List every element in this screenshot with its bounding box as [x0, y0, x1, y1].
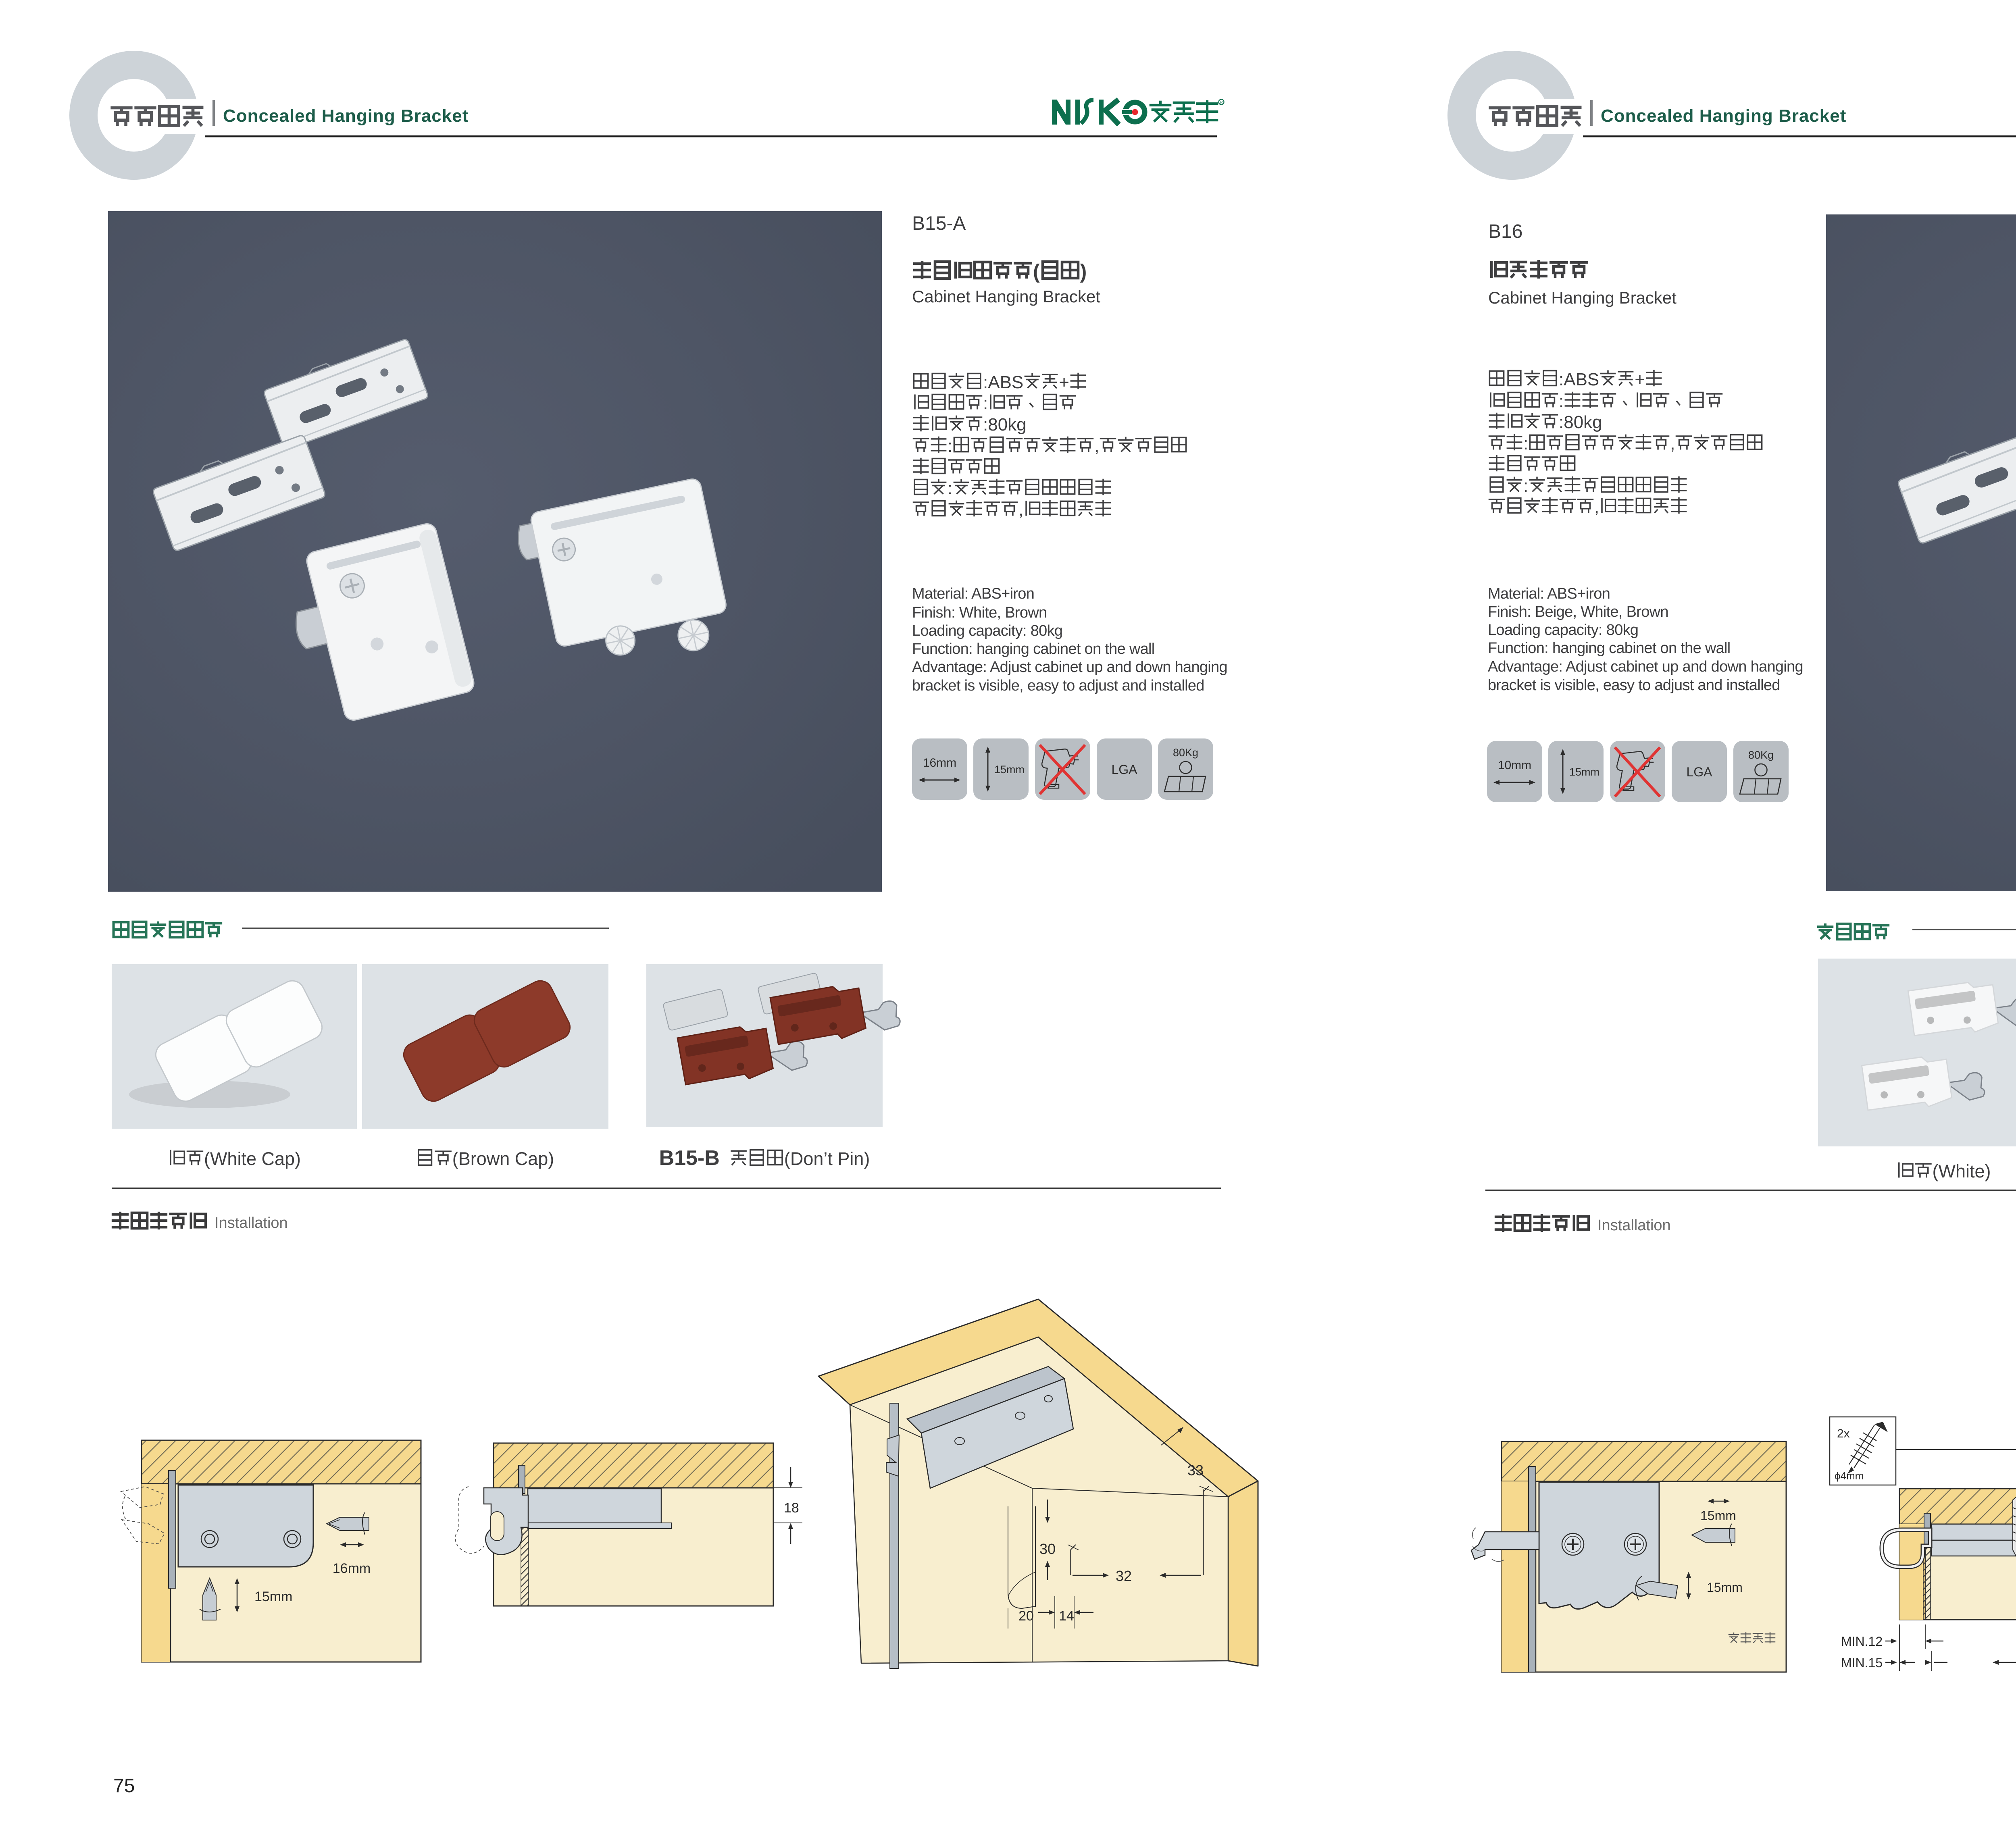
svg-text:16mm: 16mm — [333, 1561, 371, 1576]
svg-text:15mm: 15mm — [254, 1589, 292, 1604]
svg-text:18: 18 — [784, 1500, 799, 1516]
svg-text:30: 30 — [1039, 1541, 1056, 1557]
svg-text:R: R — [1220, 100, 1223, 105]
svg-text:15mm: 15mm — [994, 763, 1025, 776]
svg-text:LGA: LGA — [1111, 762, 1137, 777]
svg-text:33: 33 — [1187, 1462, 1204, 1479]
svg-text:80Kg: 80Kg — [1173, 747, 1198, 759]
svg-text:16mm: 16mm — [923, 756, 956, 770]
svg-text:15mm: 15mm — [1707, 1580, 1743, 1595]
svg-text:2x: 2x — [1837, 1427, 1850, 1440]
svg-text:10mm: 10mm — [1498, 759, 1531, 772]
svg-text:15mm: 15mm — [1700, 1508, 1736, 1523]
svg-text:80Kg: 80Kg — [1748, 749, 1774, 761]
svg-text:MIN.15: MIN.15 — [1841, 1656, 1883, 1670]
svg-text:14: 14 — [1059, 1608, 1074, 1624]
svg-text:20: 20 — [1018, 1608, 1034, 1624]
svg-text:ϕ4mm: ϕ4mm — [1835, 1470, 1864, 1482]
svg-text:MIN.12: MIN.12 — [1841, 1634, 1883, 1649]
svg-text:32: 32 — [1116, 1568, 1132, 1584]
svg-text:LGA: LGA — [1686, 765, 1712, 779]
svg-text:15mm: 15mm — [1569, 766, 1599, 778]
